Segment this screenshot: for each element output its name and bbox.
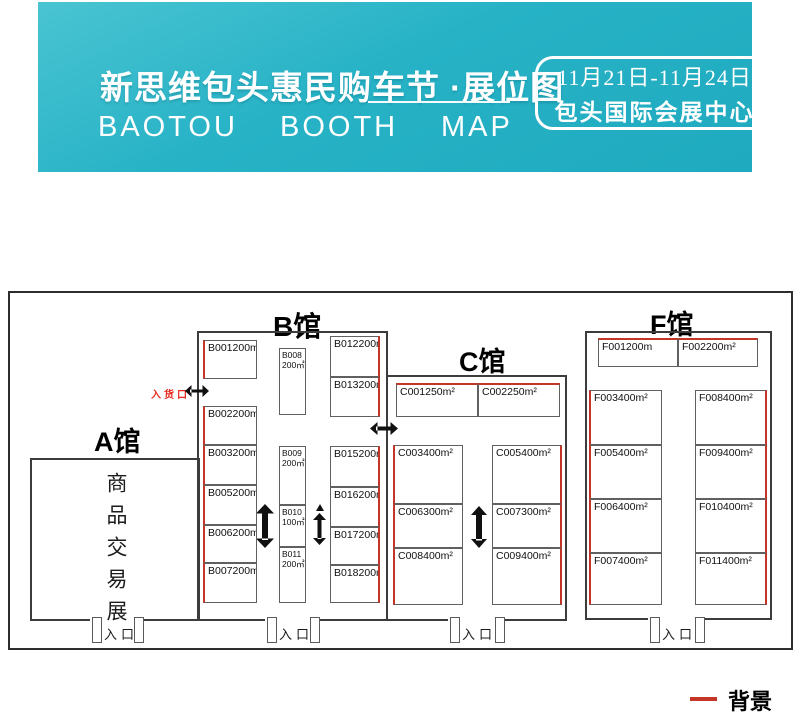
wall-bottom-f-left bbox=[585, 618, 648, 620]
b-c-aisle-double-arrow-icon bbox=[370, 422, 398, 435]
legend-red-swatch bbox=[690, 697, 717, 701]
booth-B009: B009200㎡ bbox=[279, 446, 306, 505]
entrance-door-post bbox=[450, 617, 460, 643]
booth-F003: F003400m² bbox=[589, 390, 662, 445]
booth-id: B010 bbox=[282, 507, 305, 517]
booth-area: 200㎡ bbox=[282, 458, 305, 468]
booth-F005: F005400m² bbox=[589, 445, 662, 499]
booth-label: F011400m² bbox=[699, 555, 752, 567]
booth-label: B017200m² bbox=[334, 529, 380, 541]
booth-label: F006400m² bbox=[594, 501, 648, 513]
booth-label: F002200m² bbox=[682, 341, 736, 353]
booth-id: B009 bbox=[282, 448, 305, 458]
subtitle-word-baotou: BAOTOU bbox=[98, 111, 238, 144]
booth-label: F003400m² bbox=[594, 392, 648, 404]
booth-label: F001200m bbox=[602, 341, 652, 353]
booth-B006: B006200m² bbox=[203, 525, 257, 563]
hall-b-label: B馆 bbox=[273, 305, 321, 345]
booth-area: 200㎡ bbox=[282, 559, 305, 569]
wall-c-right bbox=[565, 375, 567, 621]
booth-label: C001250m² bbox=[400, 386, 455, 398]
booth-F011: F011400m² bbox=[695, 553, 767, 605]
booth-label: C006300m² bbox=[398, 506, 453, 518]
booth-B018: B018200m² bbox=[330, 565, 380, 603]
subtitle-word-booth: BOOTH bbox=[280, 111, 398, 144]
booth-B008: B008200㎡ bbox=[279, 348, 306, 415]
wall-b-left bbox=[197, 331, 199, 621]
booth-F007: F007400m² bbox=[589, 553, 662, 605]
booth-label: B005200m² bbox=[208, 487, 257, 499]
booth-label: B006200m² bbox=[208, 527, 257, 539]
booth-C001: C001250m² bbox=[396, 383, 478, 417]
wall-bottom-ab bbox=[144, 619, 265, 621]
booth-label: C005400m² bbox=[496, 447, 551, 459]
booth-C003: C003400m² bbox=[393, 445, 463, 504]
booth-F008: F008400m² bbox=[695, 390, 767, 445]
booth-label: C009400m² bbox=[496, 550, 551, 562]
hall-c-aisle-double-arrow-icon bbox=[471, 506, 487, 548]
booth-C008: C008400m² bbox=[393, 548, 463, 605]
booth-label: B015200m² bbox=[334, 448, 380, 460]
booth-label: C002250m² bbox=[482, 386, 537, 398]
entrance-label-b: 入口 bbox=[279, 624, 313, 643]
booth-B013: B013200m² bbox=[330, 377, 380, 417]
wall-b-top bbox=[197, 331, 388, 333]
wall-bottom-c bbox=[505, 619, 567, 621]
entrance-door-post bbox=[92, 617, 102, 643]
hall-b-aisle-double-arrow-icon bbox=[256, 504, 274, 548]
booth-B003: B003200m² bbox=[203, 445, 257, 485]
booth-label: F010400m² bbox=[699, 501, 753, 513]
booth-B005: B005200m² bbox=[203, 485, 257, 525]
entrance-door-post bbox=[650, 617, 660, 643]
booth-B010: B010100㎡ bbox=[279, 505, 306, 547]
entrance-door-post bbox=[695, 617, 705, 643]
hall-c-label: C馆 bbox=[459, 340, 506, 379]
booth-B016: B016200m² bbox=[330, 487, 380, 527]
booth-id: B008 bbox=[282, 350, 305, 360]
title-underline bbox=[368, 101, 510, 103]
entrance-label-f: 入口 bbox=[662, 624, 696, 643]
wall-bottom-bc bbox=[320, 619, 448, 621]
wall-c-top bbox=[386, 375, 567, 377]
wall-bottom-a bbox=[30, 619, 90, 621]
booth-B001: B001200m bbox=[203, 340, 257, 379]
booth-F001: F001200m bbox=[598, 338, 678, 367]
booth-F010: F010400m² bbox=[695, 499, 767, 553]
booth-F009: F009400m² bbox=[695, 445, 767, 499]
booth-B012: B012200m² bbox=[330, 336, 380, 377]
hall-a-label: A馆 bbox=[94, 420, 141, 459]
booth-label: B002200m² bbox=[208, 408, 257, 420]
booth-id: B011 bbox=[282, 549, 305, 559]
booth-label: B016200m² bbox=[334, 489, 380, 501]
goods-entrance-double-arrow-icon bbox=[185, 385, 209, 397]
event-info-badge: 11月21日-11月24日 包头国际会展中心 bbox=[535, 56, 774, 130]
hall-b-small-arrowhead-icon bbox=[316, 504, 324, 511]
hall-b-narrow-aisle-double-arrow-icon bbox=[313, 513, 326, 545]
poster: 新思维包头惠民购车节 ·展位图 BAOTOU BOOTH MAP 11月21日-… bbox=[0, 0, 800, 724]
booth-F002: F002200m² bbox=[678, 338, 758, 367]
event-venue: 包头国际会展中心 bbox=[555, 93, 755, 127]
entrance-door-post bbox=[495, 617, 505, 643]
booth-B017: B017200m² bbox=[330, 527, 380, 565]
entrance-label-c: 入口 bbox=[462, 624, 496, 643]
booth-F006: F006400m² bbox=[589, 499, 662, 553]
legend-label: 背景 bbox=[728, 684, 772, 716]
booth-C002: C002250m² bbox=[478, 383, 560, 417]
booth-C007: C007300m² bbox=[492, 504, 562, 548]
booth-label: C007300m² bbox=[496, 506, 551, 518]
booth-area: 200㎡ bbox=[282, 360, 305, 370]
booth-label: B018200m² bbox=[334, 567, 380, 579]
booth-label: C008400m² bbox=[398, 550, 453, 562]
booth-label: F009400m² bbox=[699, 447, 753, 459]
hall-a-vertical-text: 商品交易展 bbox=[101, 472, 131, 632]
booth-label: F008400m² bbox=[699, 392, 753, 404]
entrance-label-a: 入口 bbox=[104, 624, 138, 643]
booth-C005: C005400m² bbox=[492, 445, 562, 504]
booth-C009: C009400m² bbox=[492, 548, 562, 605]
booth-B011: B011200㎡ bbox=[279, 547, 306, 603]
header-band: 新思维包头惠民购车节 ·展位图 BAOTOU BOOTH MAP 11月21日-… bbox=[38, 2, 752, 172]
event-dates: 11月21日-11月24日 bbox=[557, 60, 752, 92]
booth-C006: C006300m² bbox=[393, 504, 463, 548]
booth-label: B012200m² bbox=[334, 338, 380, 350]
booth-B007: B007200m² bbox=[203, 563, 257, 603]
booth-area: 100㎡ bbox=[282, 517, 305, 527]
booth-label: C003400m² bbox=[398, 447, 453, 459]
booth-label: B001200m bbox=[208, 342, 257, 354]
subtitle-word-map: MAP bbox=[441, 111, 513, 144]
booth-label: F005400m² bbox=[594, 447, 648, 459]
booth-B015: B015200m² bbox=[330, 446, 380, 487]
wall-bottom-f-right bbox=[705, 618, 772, 620]
booth-B002: B002200m² bbox=[203, 406, 257, 445]
booth-label: B013200m² bbox=[334, 379, 380, 391]
booth-label: B007200m² bbox=[208, 565, 257, 577]
booth-label: F007400m² bbox=[594, 555, 648, 567]
entrance-door-post bbox=[267, 617, 277, 643]
booth-label: B003200m² bbox=[208, 447, 257, 459]
